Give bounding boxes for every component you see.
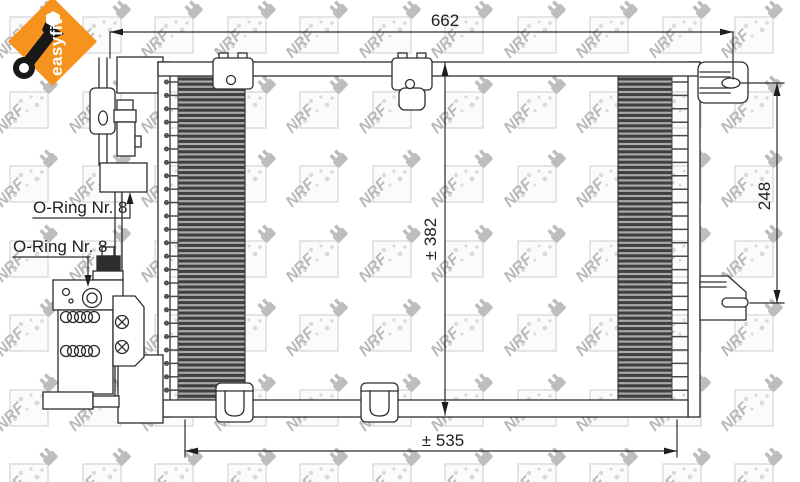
condenser-technical-drawing: 662 ± 382 248 ± 535 (0, 0, 800, 482)
right-tube-ends (672, 82, 687, 390)
right-header-tank (688, 62, 700, 417)
dim-382-label: ± 382 (421, 218, 440, 260)
condenser-core-left (178, 76, 245, 400)
easyfit-badge: easyfit (0, 0, 110, 104)
technical-drawing-page: NRFNRFNRFNRFNRFNRFNRFNRFNRFNRFNRFNRFNRFN… (0, 0, 800, 482)
top-mounting-bracket-2 (392, 53, 432, 110)
oring-label-top: O-Ring Nr. 8 (33, 192, 134, 218)
bottom-mount-2 (361, 383, 398, 422)
dim-248-label: 248 (755, 182, 774, 210)
right-lower-mounting-bracket (700, 276, 748, 320)
receiver-drier (43, 247, 163, 423)
dim-662-label: 662 (431, 11, 459, 30)
easyfit-label: easyfit (47, 10, 67, 76)
oring-port (83, 289, 102, 308)
oring-port-block (100, 163, 147, 192)
dim-535-label: ± 535 (422, 431, 464, 450)
bottom-mount-1 (216, 383, 253, 422)
screw-1 (116, 316, 129, 329)
drier-bracket (113, 296, 144, 366)
dim-382: ± 382 (421, 63, 449, 415)
condenser-core-right (618, 76, 672, 400)
screw-2 (116, 341, 129, 354)
oring-bottom-text: O-Ring Nr. 8 (13, 237, 107, 256)
oring-top-text: O-Ring Nr. 8 (33, 198, 127, 217)
dim-248: 248 (740, 83, 784, 303)
top-mounting-bracket-1 (213, 53, 253, 89)
dim-535: ± 535 (185, 420, 677, 457)
